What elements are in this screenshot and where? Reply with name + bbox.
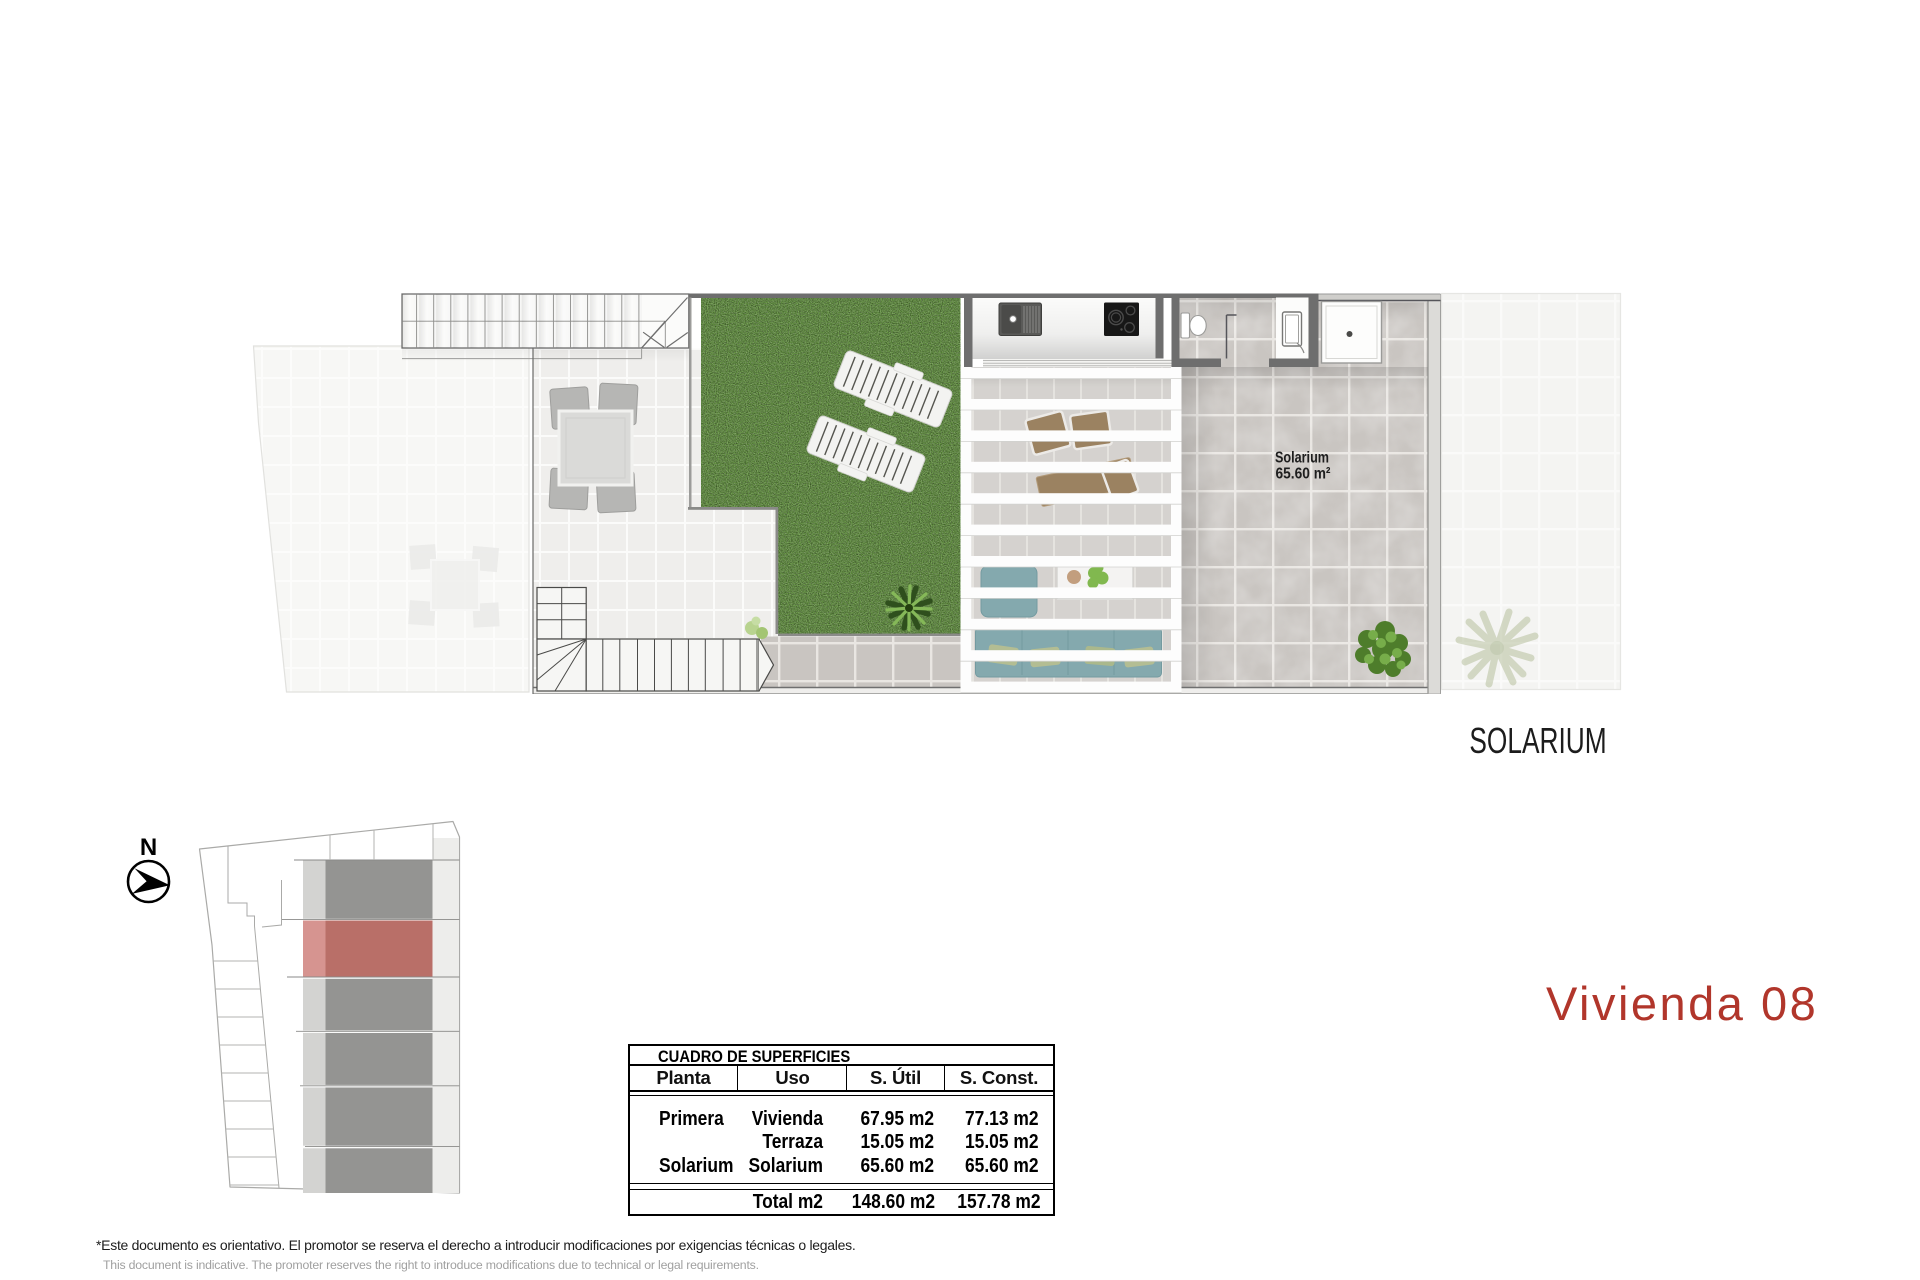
svg-text:N: N	[140, 834, 157, 861]
svg-text:Solarium: Solarium	[1275, 450, 1329, 467]
svg-text:65.60 m²: 65.60 m²	[1276, 466, 1331, 483]
